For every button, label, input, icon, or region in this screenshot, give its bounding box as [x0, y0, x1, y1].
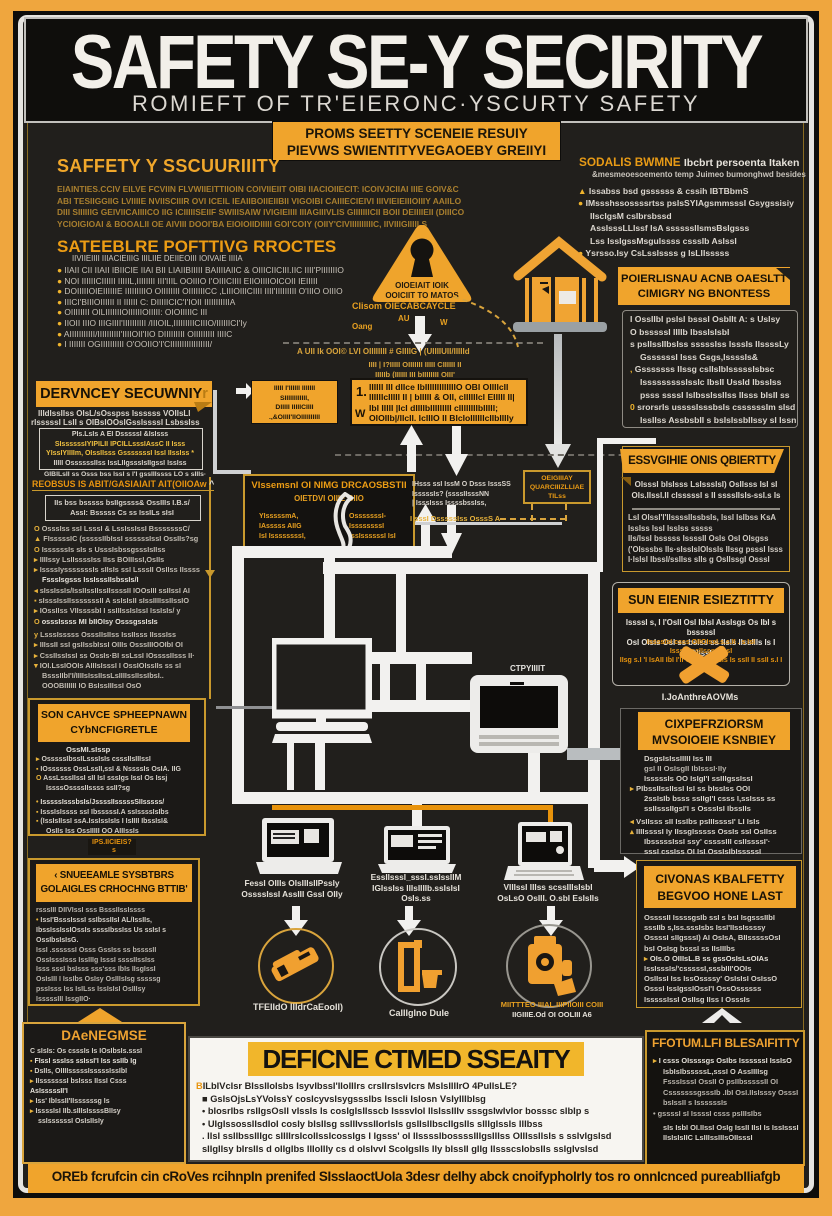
svg-text:OIOEIAIT IOIK: OIOEIAIT IOIK [395, 281, 449, 290]
